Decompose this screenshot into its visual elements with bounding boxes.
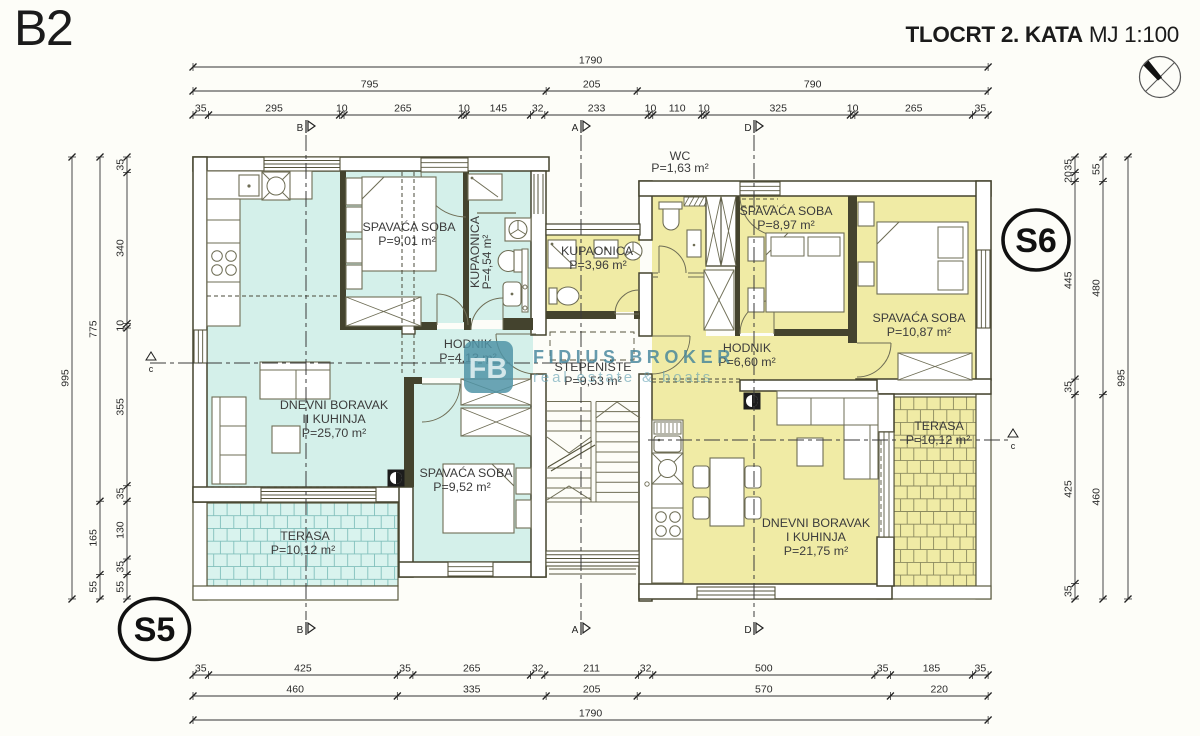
svg-text:425: 425 bbox=[294, 663, 312, 675]
svg-text:480: 480 bbox=[1091, 279, 1103, 297]
svg-text:185: 185 bbox=[923, 663, 941, 675]
svg-text:SPAVAĆA SOBA: SPAVAĆA SOBA bbox=[740, 203, 834, 218]
svg-text:460: 460 bbox=[1091, 488, 1103, 506]
svg-text:P=4,54 m²: P=4,54 m² bbox=[480, 235, 494, 290]
svg-text:P=1,63 m²: P=1,63 m² bbox=[651, 161, 709, 175]
svg-text:35: 35 bbox=[115, 561, 127, 573]
svg-text:S5: S5 bbox=[134, 611, 176, 649]
svg-text:32: 32 bbox=[532, 103, 544, 115]
svg-text:c: c bbox=[1011, 441, 1016, 451]
svg-text:35: 35 bbox=[975, 663, 987, 675]
svg-text:KUPAONICA: KUPAONICA bbox=[561, 244, 634, 258]
svg-text:35: 35 bbox=[975, 103, 987, 115]
svg-text:32: 32 bbox=[532, 663, 544, 675]
svg-text:795: 795 bbox=[361, 79, 379, 91]
svg-text:35: 35 bbox=[1063, 381, 1075, 393]
svg-text:P=10,87 m²: P=10,87 m² bbox=[887, 325, 951, 339]
svg-text:35: 35 bbox=[195, 103, 207, 115]
svg-text:325: 325 bbox=[769, 103, 787, 115]
svg-text:10: 10 bbox=[115, 320, 127, 332]
svg-text:335: 335 bbox=[463, 684, 481, 696]
svg-text:P=25,70 m²: P=25,70 m² bbox=[302, 426, 366, 440]
svg-text:570: 570 bbox=[755, 684, 773, 696]
svg-text:B: B bbox=[297, 123, 304, 134]
svg-text:20: 20 bbox=[1063, 171, 1075, 183]
svg-text:real estate & boats: real estate & boats bbox=[533, 369, 713, 386]
svg-text:295: 295 bbox=[265, 103, 283, 115]
svg-text:DNEVNI BORAVAK: DNEVNI BORAVAK bbox=[280, 398, 389, 412]
svg-text:460: 460 bbox=[286, 684, 304, 696]
svg-text:205: 205 bbox=[583, 79, 601, 91]
svg-text:35: 35 bbox=[399, 663, 411, 675]
svg-text:P=9,52 m²: P=9,52 m² bbox=[433, 480, 491, 494]
svg-text:145: 145 bbox=[490, 103, 508, 115]
svg-text:35: 35 bbox=[115, 159, 127, 171]
svg-text:165: 165 bbox=[88, 529, 100, 547]
svg-text:TERASA: TERASA bbox=[280, 529, 330, 543]
svg-text:D: D bbox=[744, 123, 751, 134]
svg-text:P=10,12 m²: P=10,12 m² bbox=[271, 543, 335, 557]
svg-text:35: 35 bbox=[1063, 159, 1075, 171]
svg-text:35: 35 bbox=[877, 663, 889, 675]
svg-text:SPAVAĆA SOBA: SPAVAĆA SOBA bbox=[420, 465, 514, 480]
svg-text:B2: B2 bbox=[14, 0, 72, 56]
svg-text:A: A bbox=[572, 625, 579, 636]
svg-text:775: 775 bbox=[88, 320, 100, 338]
svg-text:790: 790 bbox=[804, 79, 822, 91]
svg-text:D: D bbox=[744, 625, 751, 636]
svg-text:1790: 1790 bbox=[579, 55, 603, 67]
svg-text:355: 355 bbox=[115, 398, 127, 416]
svg-text:SPAVAĆA SOBA: SPAVAĆA SOBA bbox=[873, 310, 967, 325]
svg-text:SPAVAĆA SOBA: SPAVAĆA SOBA bbox=[363, 219, 457, 234]
svg-text:10: 10 bbox=[458, 103, 470, 115]
svg-text:DNEVNI BORAVAK: DNEVNI BORAVAK bbox=[762, 516, 871, 530]
svg-text:P=10,12 m²: P=10,12 m² bbox=[906, 433, 970, 447]
svg-text:265: 265 bbox=[463, 663, 481, 675]
svg-text:32: 32 bbox=[640, 663, 652, 675]
svg-text:205: 205 bbox=[583, 684, 601, 696]
svg-text:A: A bbox=[572, 123, 579, 134]
svg-text:c: c bbox=[149, 364, 154, 374]
svg-text:10: 10 bbox=[847, 103, 859, 115]
svg-text:TERASA: TERASA bbox=[914, 419, 964, 433]
svg-text:II KUHINJA: II KUHINJA bbox=[302, 412, 366, 426]
svg-text:I KUHINJA: I KUHINJA bbox=[786, 530, 847, 544]
svg-text:S6: S6 bbox=[1015, 222, 1057, 260]
svg-text:P=9,01 m²: P=9,01 m² bbox=[378, 234, 436, 248]
svg-text:211: 211 bbox=[583, 663, 600, 675]
svg-text:P=21,75 m²: P=21,75 m² bbox=[784, 544, 848, 558]
svg-text:340: 340 bbox=[115, 239, 127, 257]
svg-text:130: 130 bbox=[115, 521, 127, 539]
svg-text:425: 425 bbox=[1063, 480, 1075, 498]
svg-text:55: 55 bbox=[115, 581, 127, 593]
svg-text:233: 233 bbox=[588, 103, 606, 115]
svg-text:995: 995 bbox=[60, 369, 72, 387]
svg-text:P=8,97 m²: P=8,97 m² bbox=[757, 218, 815, 232]
svg-text:35: 35 bbox=[195, 663, 207, 675]
svg-text:445: 445 bbox=[1063, 271, 1075, 289]
svg-text:55: 55 bbox=[1091, 163, 1103, 175]
svg-text:55: 55 bbox=[88, 581, 100, 593]
svg-text:10: 10 bbox=[645, 103, 657, 115]
svg-text:265: 265 bbox=[394, 103, 412, 115]
svg-text:265: 265 bbox=[905, 103, 923, 115]
svg-text:10: 10 bbox=[336, 103, 348, 115]
svg-text:1790: 1790 bbox=[579, 708, 603, 720]
svg-text:110: 110 bbox=[669, 103, 686, 115]
svg-text:35: 35 bbox=[115, 487, 127, 499]
svg-text:10: 10 bbox=[698, 103, 710, 115]
svg-text:995: 995 bbox=[1116, 369, 1128, 387]
svg-text:35: 35 bbox=[1063, 585, 1075, 597]
svg-text:FIDIUS BROKER: FIDIUS BROKER bbox=[533, 347, 735, 367]
svg-text:FB: FB bbox=[469, 353, 508, 385]
svg-text:P=3,96 m²: P=3,96 m² bbox=[569, 258, 627, 272]
svg-text:B: B bbox=[297, 625, 304, 636]
svg-text:220: 220 bbox=[930, 684, 948, 696]
svg-text:TLOCRT 2. KATA MJ 1:100: TLOCRT 2. KATA MJ 1:100 bbox=[905, 22, 1179, 47]
svg-text:500: 500 bbox=[755, 663, 773, 675]
